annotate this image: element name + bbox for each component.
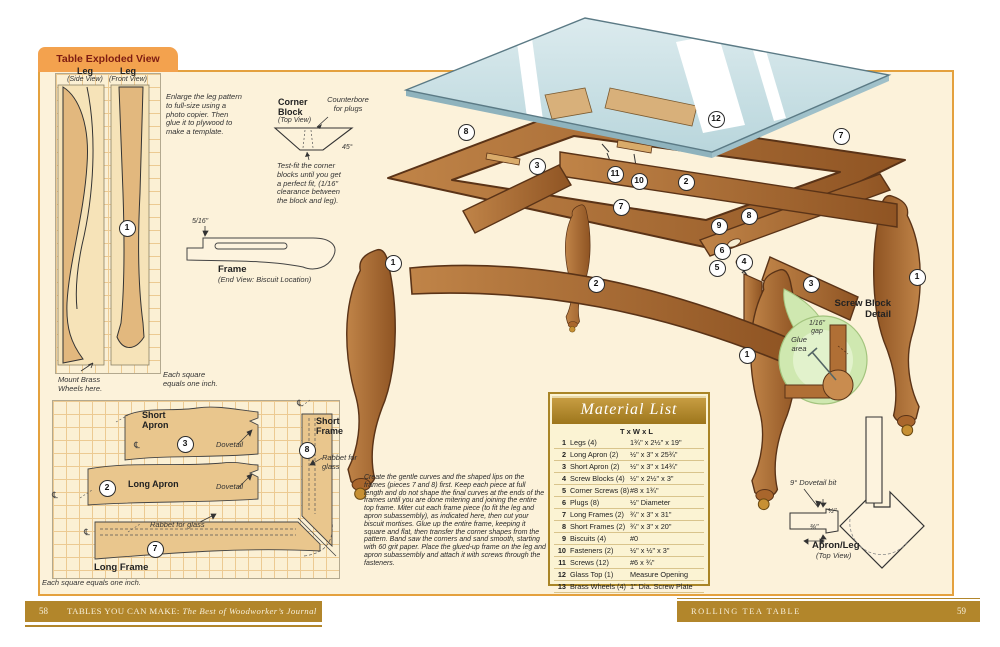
dovetail-label-2: Dovetail bbox=[216, 483, 243, 492]
assembly-instructions: Create the gentle curves and the shaped … bbox=[364, 474, 546, 568]
plug bbox=[736, 259, 742, 265]
long-frame-label: Long Frame bbox=[94, 563, 148, 574]
part-name: Short Frames (2) bbox=[570, 521, 625, 532]
centerline-icon: ℄ bbox=[84, 527, 90, 538]
testfit-note: Test-fit the corner blocks until you get… bbox=[277, 162, 361, 206]
part-name: Long Apron (2) bbox=[570, 449, 618, 460]
dim-half-inch: ½" bbox=[828, 508, 836, 516]
frame-end-title: Frame bbox=[218, 265, 247, 276]
part-name: Short Apron (2) bbox=[570, 461, 619, 472]
dovetail-bit-label: 9° Dovetail bit bbox=[790, 479, 836, 488]
material-list-row: 8Short Frames (2)¾" x 3" x 20" bbox=[554, 521, 704, 533]
material-list-row: 3Short Apron (2)½" x 3" x 14¾" bbox=[554, 461, 704, 473]
dim-three-eighths: ⅜" bbox=[810, 524, 818, 532]
part-dimensions: ½" Diameter bbox=[630, 497, 670, 508]
mount-brass-note: Mount Brass Wheels here. bbox=[58, 376, 128, 394]
part-number: 2 bbox=[554, 449, 566, 460]
material-list-row: 10Fasteners (2)½" x ½" x 3" bbox=[554, 545, 704, 557]
apron-leg-sub: (Top View) bbox=[816, 552, 851, 561]
long-apron-label: Long Apron bbox=[128, 479, 179, 489]
short-frame-label: Short Frame bbox=[316, 416, 343, 436]
part-dimensions: #0 bbox=[630, 533, 638, 544]
square-scale-note-bottom: Each square equals one inch. bbox=[42, 579, 141, 588]
material-list-row: 7Long Frames (2)¾" x 3" x 31" bbox=[554, 509, 704, 521]
part-number: 12 bbox=[554, 569, 566, 580]
part-number: 8 bbox=[554, 521, 566, 532]
part-number: 1 bbox=[554, 437, 566, 448]
rabbet-label-left: Rabbet for glass bbox=[150, 521, 205, 530]
material-list-row: 4Screw Blocks (4)½" x 2½" x 3" bbox=[554, 473, 704, 485]
part-name: Glass Top (1) bbox=[570, 569, 613, 580]
part-dimensions: #8 x 1¾" bbox=[630, 485, 659, 496]
material-list-card: Material List T x W x L 1Legs (4)1¾" x 2… bbox=[548, 392, 710, 586]
glue-area-label: Glue area bbox=[784, 336, 814, 354]
part-number: 6 bbox=[554, 497, 566, 508]
apron-leg-title: Apron/Leg bbox=[812, 541, 860, 552]
gap-label: 1/16" gap bbox=[800, 320, 834, 336]
part-dimensions: ½" x 3" x 25¾" bbox=[630, 449, 678, 460]
material-list-row: 13Brass Wheels (4)1" Dia. Screw Plate bbox=[554, 581, 704, 593]
material-list-row: 5Corner Screws (8)#8 x 1¾" bbox=[554, 485, 704, 497]
material-list-row: 2Long Apron (2)½" x 3" x 25¾" bbox=[554, 449, 704, 461]
material-list-row: 11Screws (12)#6 x ¾" bbox=[554, 557, 704, 569]
part-number: 11 bbox=[554, 557, 566, 568]
material-list-title: Material List bbox=[580, 401, 677, 418]
part-name: Fasteners (2) bbox=[570, 545, 613, 556]
part-number: 7 bbox=[554, 509, 566, 520]
part-dimensions: ½" x ½" x 3" bbox=[630, 545, 669, 556]
material-list-rows: 1Legs (4)1¾" x 2½" x 19"2Long Apron (2)½… bbox=[554, 437, 704, 593]
part-name: Biscuits (4) bbox=[570, 533, 606, 544]
part-dimensions: ¾" x 3" x 20" bbox=[630, 521, 671, 532]
short-apron-label: Short Apron bbox=[142, 410, 169, 430]
material-list-row: 9Biscuits (4)#0 bbox=[554, 533, 704, 545]
frame-biscuit-dim: 5/16" bbox=[192, 218, 208, 226]
angle-45-label: 45° bbox=[342, 144, 353, 152]
leg-front-sub: (Front View) bbox=[101, 76, 155, 84]
material-list-row: 12Glass Top (1)Measure Opening bbox=[554, 569, 704, 581]
part-name: Plugs (8) bbox=[570, 497, 599, 508]
part-dimensions: ½" x 3" x 14¾" bbox=[630, 461, 678, 472]
magazine-spread: Table Exploded View Leg (Side View) Leg … bbox=[0, 0, 1000, 647]
part-dimensions: ½" x 2½" x 3" bbox=[630, 473, 673, 484]
corner-block-sub: (Top View) bbox=[278, 117, 311, 125]
part-dimensions: 1" Dia. Screw Plate bbox=[630, 581, 693, 592]
centerline-icon: ℄ bbox=[297, 398, 303, 409]
apron-leg-topview-diagram bbox=[790, 415, 950, 580]
part-number: 3 bbox=[554, 461, 566, 472]
frame-end-sub: (End View: Biscuit Location) bbox=[218, 276, 311, 285]
glass-top bbox=[406, 18, 889, 158]
leg-side-label: Leg bbox=[66, 66, 104, 76]
leg-back bbox=[565, 205, 590, 332]
dovetail-label-1: Dovetail bbox=[216, 441, 243, 450]
part-dimensions: ¾" x 3" x 31" bbox=[630, 509, 671, 520]
centerline-icon: ℄ bbox=[134, 440, 140, 451]
leg-front-label: Leg bbox=[109, 66, 147, 76]
part-name: Screws (12) bbox=[570, 557, 609, 568]
material-list-row: 1Legs (4)1¾" x 2½" x 19" bbox=[554, 437, 704, 449]
part-number: 10 bbox=[554, 545, 566, 556]
part-number: 4 bbox=[554, 473, 566, 484]
part-name: Corner Screws (8) bbox=[570, 485, 629, 496]
corner-block-title: Corner Block bbox=[278, 97, 308, 117]
part-number: 5 bbox=[554, 485, 566, 496]
part-dimensions: #6 x ¾" bbox=[630, 557, 655, 568]
material-list-row: 6Plugs (8)½" Diameter bbox=[554, 497, 704, 509]
part-name: Screw Blocks (4) bbox=[570, 473, 625, 484]
centerline-icon: ℄ bbox=[52, 490, 58, 501]
part-number: 13 bbox=[554, 581, 566, 592]
material-list-column-header: T x W x L bbox=[620, 427, 700, 436]
counterbore-label: Counterbore for plugs bbox=[322, 96, 374, 114]
screw-block-detail-title: Screw Block Detail bbox=[815, 299, 891, 320]
part-name: Long Frames (2) bbox=[570, 509, 624, 520]
square-scale-note-top: Each square equals one inch. bbox=[163, 371, 243, 389]
part-name: Legs (4) bbox=[570, 437, 597, 448]
part-dimensions: Measure Opening bbox=[630, 569, 688, 580]
part-name: Brass Wheels (4) bbox=[570, 581, 626, 592]
enlarge-note: Enlarge the leg pattern to full-size usi… bbox=[166, 93, 264, 137]
part-number: 9 bbox=[554, 533, 566, 544]
part-dimensions: 1¾" x 2½" x 19" bbox=[630, 437, 682, 448]
long-apron-front bbox=[410, 265, 788, 362]
material-list-header: Material List bbox=[552, 396, 706, 424]
rabbet-label-right: Rabbet for glass bbox=[322, 454, 362, 472]
